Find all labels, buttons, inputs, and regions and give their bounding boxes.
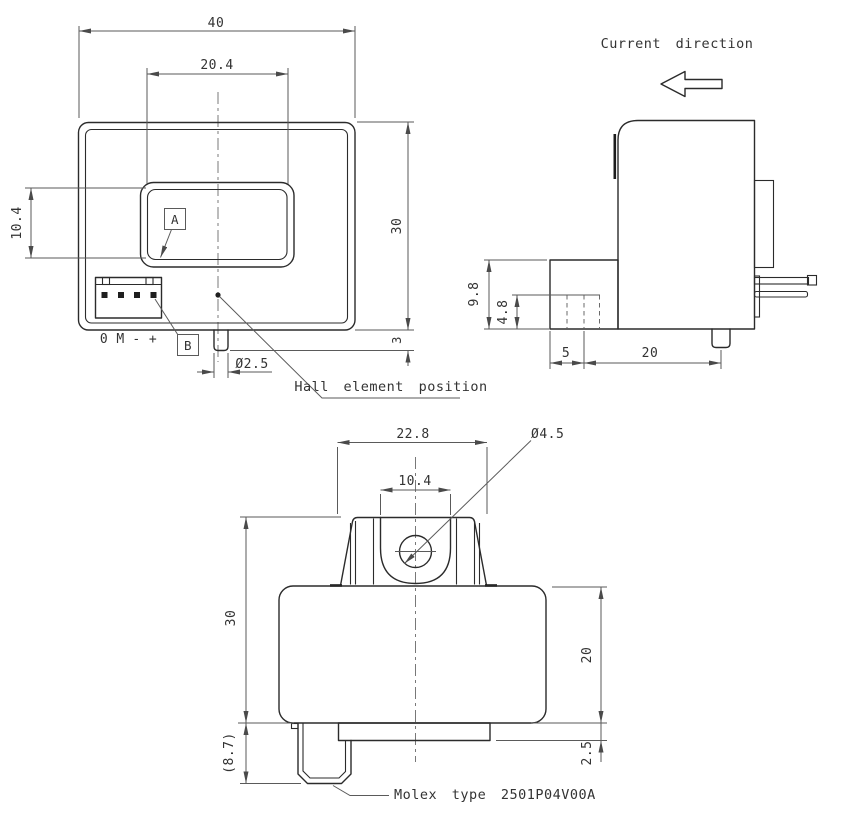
dim-side-left: 5: [562, 346, 570, 361]
bottom-plate: [339, 723, 491, 741]
front-window-outline: [141, 183, 295, 268]
side-dimensions: [484, 260, 721, 369]
technical-drawing-page: 40 20.4 10.4 30 3 Ø2.5 A B 0 M - + Hall …: [0, 0, 850, 816]
dim-bottom-conn-height: (8.7): [222, 732, 237, 774]
dim-front-peg-dia: Ø2.5: [235, 357, 268, 372]
pin-label-minus: -: [132, 332, 140, 347]
pin-label-plus: +: [149, 332, 157, 347]
molex-note: Molex type 2501P04V00A: [394, 787, 596, 803]
side-peg: [712, 329, 730, 348]
front-body-outline: [79, 123, 356, 331]
side-pin-lower: [755, 292, 808, 298]
dim-front-window-width: 20.4: [200, 58, 233, 73]
side-body-outline: [618, 121, 755, 330]
dim-front-height: 30: [390, 218, 405, 235]
pin-1: [102, 292, 108, 298]
pin-label-m: M: [116, 332, 124, 347]
dim-front-window-height: 10.4: [10, 206, 25, 239]
current-direction-arrow-icon: [661, 72, 722, 97]
side-pin-upper: [755, 278, 809, 285]
side-tab: [755, 181, 774, 268]
bottom-body-outline: [279, 586, 546, 723]
label-a: A: [171, 212, 179, 227]
molex-leader: [333, 786, 389, 796]
label-a-leader: [161, 230, 172, 258]
drawing-canvas: 40 20.4 10.4 30 3 Ø2.5 A B 0 M - + Hall …: [0, 0, 850, 816]
bottom-dimensions: [238, 441, 607, 796]
dim-bottom-slot-width: 10.4: [398, 474, 431, 489]
side-view: Current direction 9.8 4.8 5 20: [467, 36, 817, 369]
dim-side-conn-height: 9.8: [467, 282, 482, 307]
front-view: 40 20.4 10.4 30 3 Ø2.5 A B 0 M - + Hall …: [10, 16, 488, 398]
dim-front-width: 40: [208, 16, 225, 31]
pin-3: [134, 292, 140, 298]
pin-4: [151, 292, 157, 298]
current-direction-label: Current direction: [601, 36, 754, 52]
hall-note: Hall element position: [294, 379, 487, 395]
dim-bottom-plate-height: 2.5: [580, 741, 595, 766]
front-peg: [214, 330, 228, 351]
dim-bottom-total-height: 30: [224, 610, 239, 627]
pin-label-0: 0: [100, 332, 108, 347]
dim-side-pin-height: 4.8: [496, 300, 511, 325]
dim-side-right: 20: [642, 346, 659, 361]
dim-bottom-top-width: 22.8: [396, 427, 429, 442]
pin-2: [118, 292, 124, 298]
side-hidden-lines: [567, 295, 600, 329]
dim-bottom-body-height: 20: [580, 647, 595, 664]
label-b: B: [184, 338, 192, 353]
hole-leader: [405, 441, 532, 564]
bottom-connector: [292, 724, 352, 784]
front-window-aperture: [148, 190, 288, 260]
bottom-view: 22.8 10.4 Ø4.5 30 20 2.5 (8.7) Molex typ…: [222, 427, 607, 803]
front-connector: [96, 278, 162, 319]
dim-front-peg-height: 3: [390, 336, 404, 344]
dim-bottom-hole-dia: Ø4.5: [531, 427, 564, 442]
